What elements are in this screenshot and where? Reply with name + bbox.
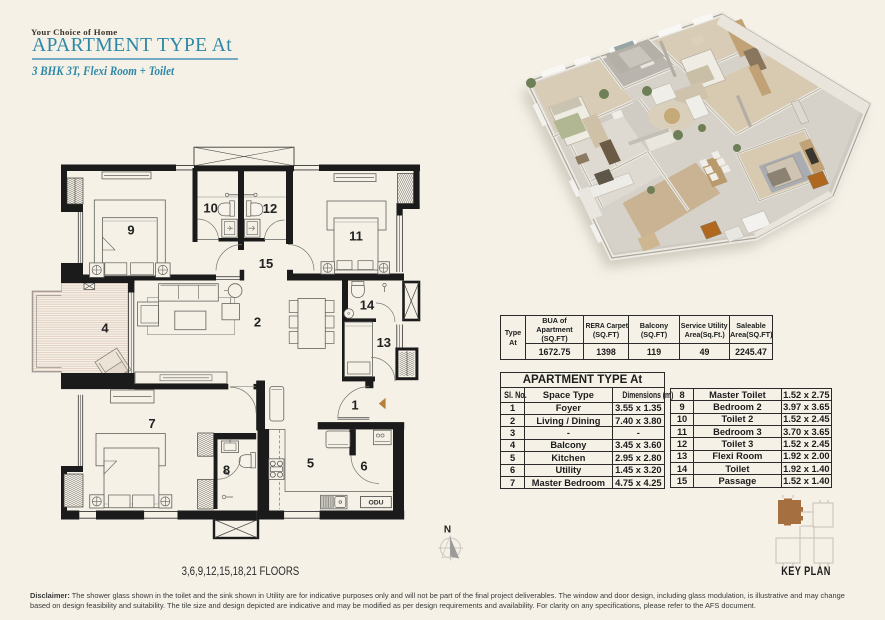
svg-text:N: N — [444, 525, 451, 536]
